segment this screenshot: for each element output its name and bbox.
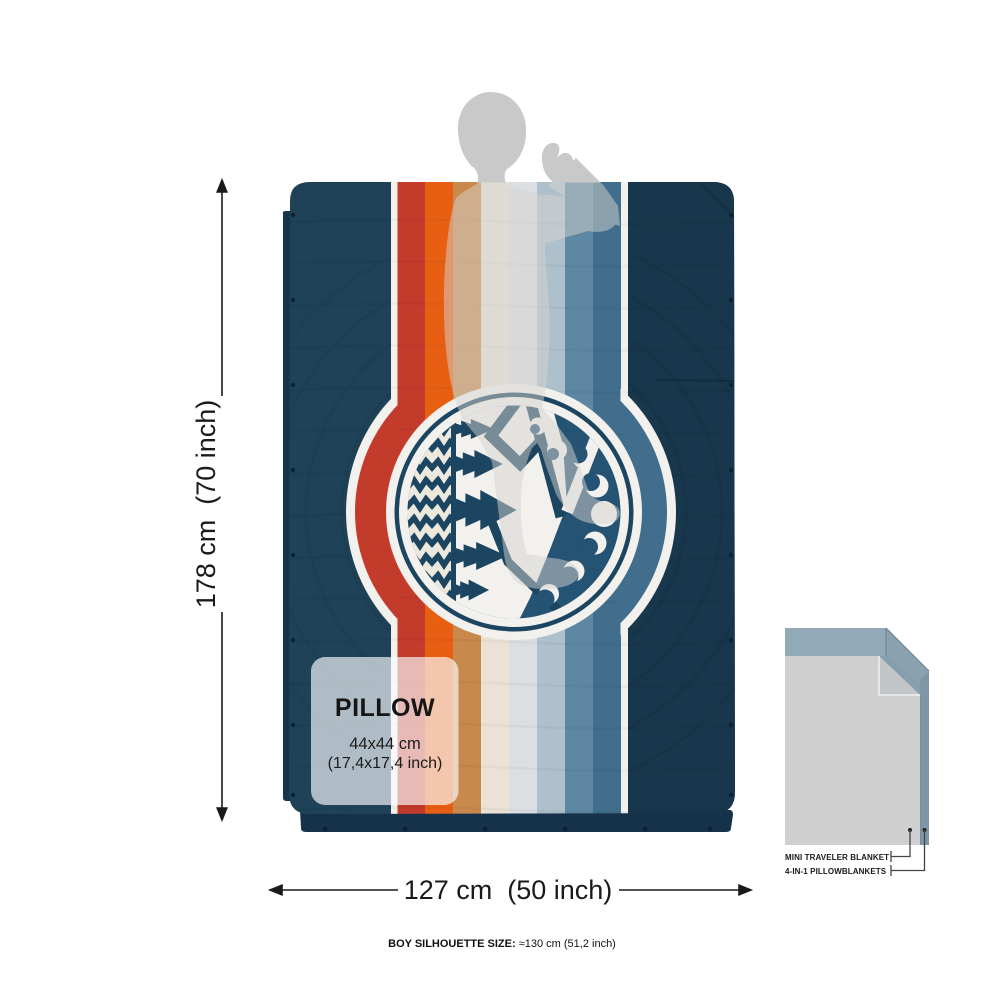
svg-text:178 cm (70 inch): 178 cm (70 inch)	[191, 400, 221, 609]
svg-text:BOY SILHOUETTE SIZE: ≈130 cm (: BOY SILHOUETTE SIZE: ≈130 cm (51,2 inch)	[388, 938, 616, 950]
svg-text:MINI TRAVELER BLANKET: MINI TRAVELER BLANKET	[785, 853, 889, 862]
svg-text:PILLOW: PILLOW	[335, 694, 435, 722]
svg-text:4-IN-1 PILLOWBLANKETS: 4-IN-1 PILLOWBLANKETS	[785, 867, 887, 876]
svg-text:127 cm (50 inch): 127 cm (50 inch)	[404, 875, 613, 905]
svg-text:(17,4x17,4 inch): (17,4x17,4 inch)	[328, 755, 443, 772]
svg-text:44x44 cm: 44x44 cm	[349, 735, 421, 753]
